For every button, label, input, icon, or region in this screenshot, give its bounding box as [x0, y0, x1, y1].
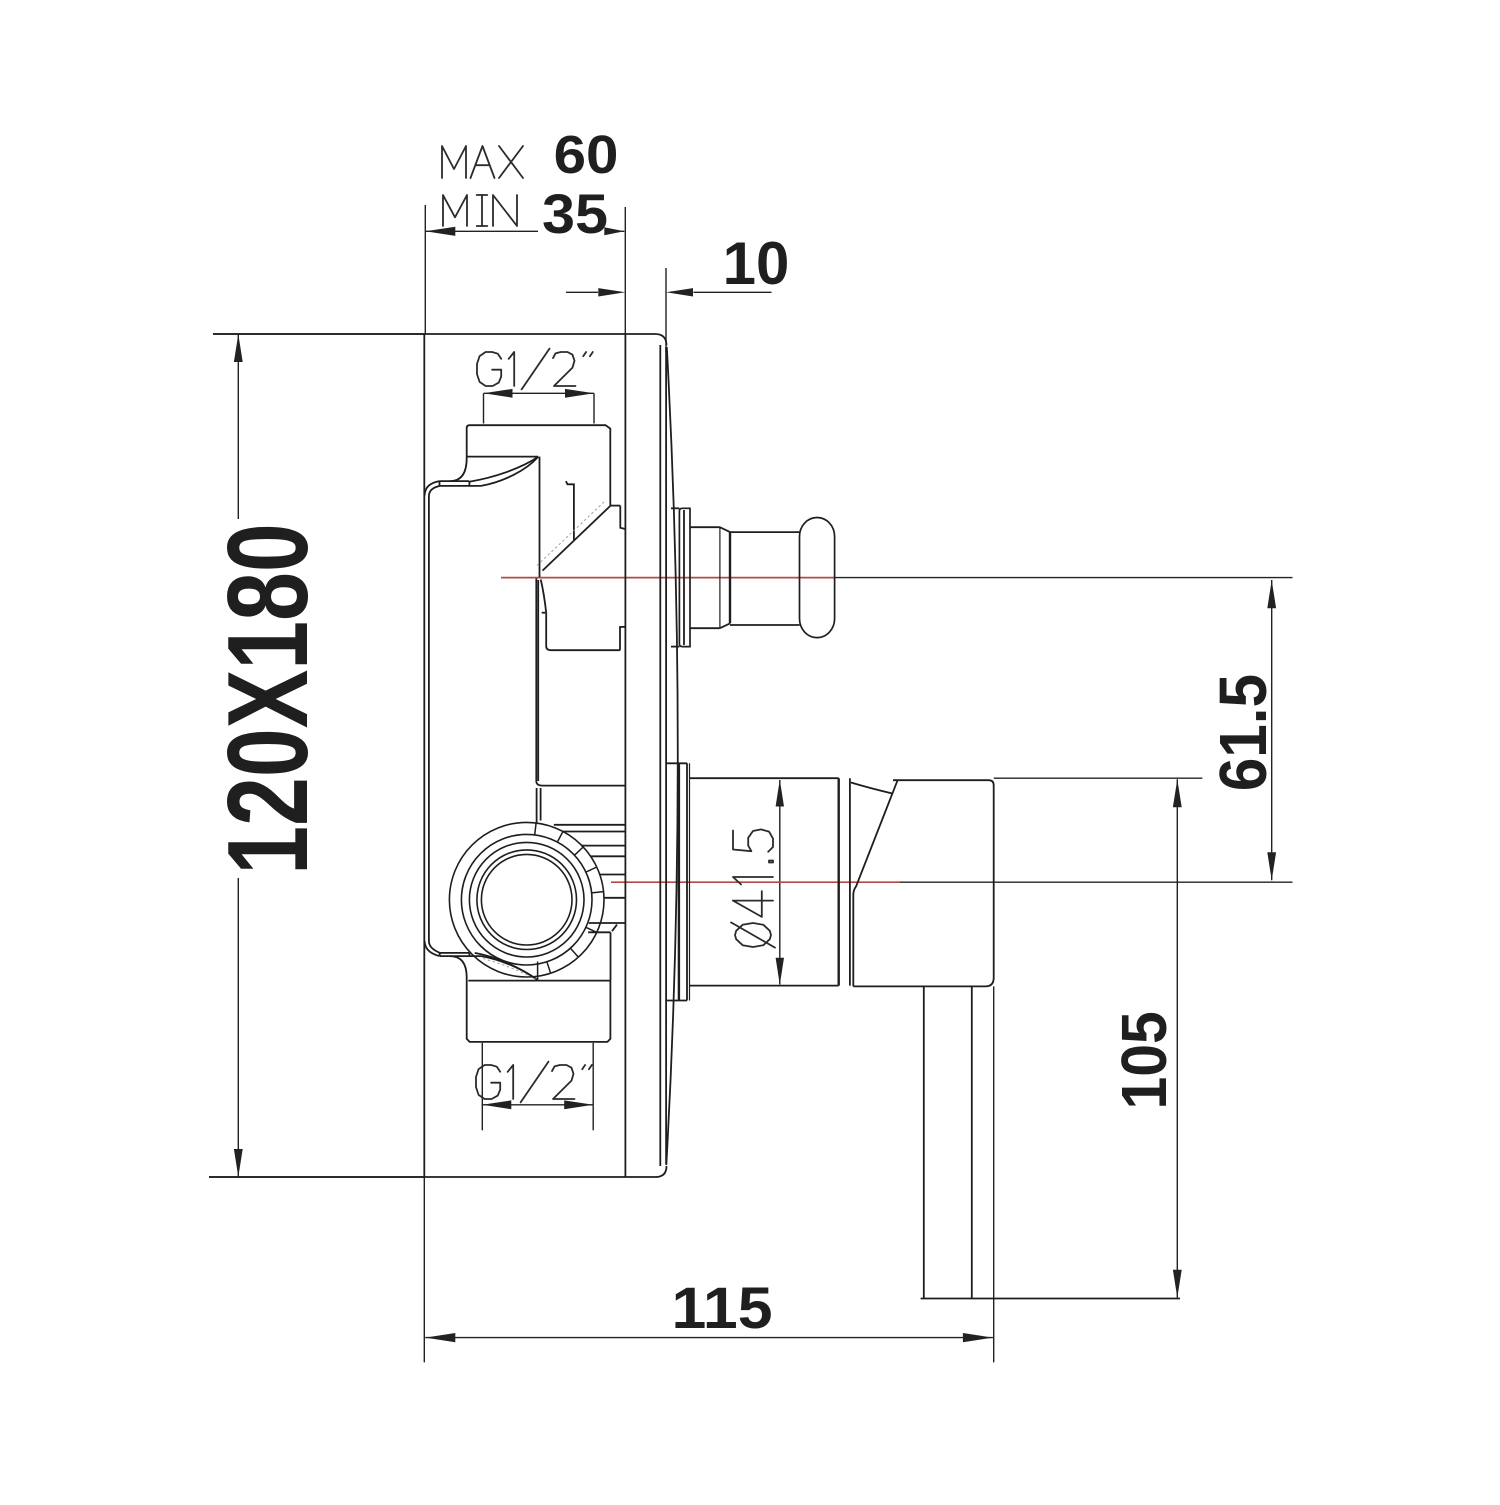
- svg-text:120X180: 120X180: [204, 523, 332, 874]
- svg-text:61.5: 61.5: [1205, 674, 1281, 791]
- svg-text:105: 105: [1109, 1011, 1181, 1109]
- svg-text:60: 60: [554, 124, 619, 185]
- svg-text:10: 10: [723, 230, 790, 297]
- svg-text:35: 35: [542, 184, 608, 246]
- svg-text:115: 115: [671, 1275, 772, 1340]
